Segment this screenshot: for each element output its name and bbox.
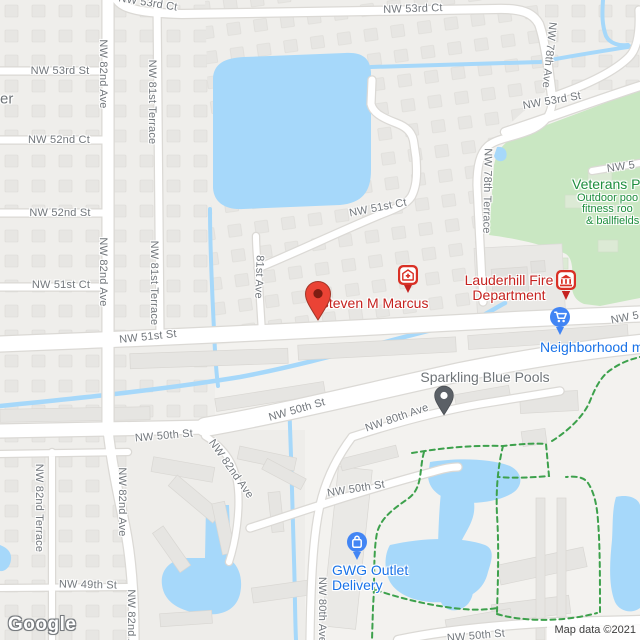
map-canvas[interactable]: Google Map data ©2021 NW 53rd CtNW 53rd … bbox=[0, 0, 640, 640]
street-label: NW 82nd Ave bbox=[97, 39, 109, 108]
gwg-outlet-pin[interactable] bbox=[346, 531, 368, 561]
street-label: NW 82nd Ave bbox=[116, 467, 128, 536]
red-map-pin-icon bbox=[304, 280, 332, 322]
poi-label-neighborhood-market[interactable]: Neighborhood m bbox=[540, 339, 640, 355]
street-label: NW 80th Ave bbox=[316, 577, 328, 640]
street-label: NW 82nd Ave bbox=[125, 589, 137, 640]
poi-label-gwg-outlet[interactable]: GWG Outlet bbox=[332, 562, 408, 578]
civic-building-icon bbox=[555, 269, 577, 301]
street-label: NW 53rd Ct bbox=[383, 2, 443, 16]
poi-label-edge-fragment[interactable]: er bbox=[0, 91, 13, 108]
medical-poi-pin[interactable] bbox=[397, 264, 419, 294]
poi-label-steven-m-marcus[interactable]: Steven M Marcus bbox=[320, 295, 429, 311]
street-label: NW 52nd St bbox=[29, 207, 90, 219]
pond-se-right bbox=[610, 496, 640, 611]
street-label: NW 51st Ct bbox=[32, 279, 90, 291]
street-label: NW 49th St bbox=[59, 578, 117, 591]
shopping-cart-icon bbox=[549, 306, 571, 336]
street-label: NW 52nd Ct bbox=[28, 134, 90, 146]
street-label: NW 81st Terrace bbox=[148, 241, 160, 326]
shopping-bag-icon bbox=[346, 531, 368, 561]
sparkling-blue-pools-pin[interactable] bbox=[434, 385, 455, 416]
street-label: NW 82nd Ave bbox=[97, 237, 109, 306]
poi-label-lauderhill-fire-1[interactable]: Lauderhill Fire bbox=[465, 272, 554, 288]
street-label: NW 82nd Terrace bbox=[33, 464, 45, 552]
fire-department-pin[interactable] bbox=[555, 269, 577, 301]
street-label: NW 53rd St bbox=[31, 65, 90, 77]
street-label: NW 78th Terrace bbox=[480, 148, 493, 234]
google-logo[interactable]: Google bbox=[8, 614, 76, 636]
gray-map-pin-icon bbox=[434, 385, 455, 416]
street-label: NW 81st Terrace bbox=[146, 60, 158, 145]
poi-label-veterans-sub-3[interactable]: & ballfields bbox=[586, 215, 639, 227]
poi-label-lauderhill-fire-2[interactable]: Department bbox=[472, 287, 545, 303]
poi-label-veterans-sub-2[interactable]: fitness roo bbox=[582, 203, 633, 215]
medical-poi-icon bbox=[397, 264, 419, 294]
pond-large bbox=[213, 53, 371, 209]
map-attribution: Map data ©2021 bbox=[547, 621, 640, 640]
neighborhood-market-pin[interactable] bbox=[549, 306, 571, 336]
poi-label-veterans-park[interactable]: Veterans P bbox=[572, 176, 640, 192]
steven-m-marcus-pin[interactable] bbox=[304, 280, 332, 322]
poi-label-gwg-delivery[interactable]: Delivery bbox=[332, 577, 383, 593]
street-label: 81st Ave bbox=[252, 255, 266, 299]
poi-label-sparkling-blue-pools[interactable]: Sparkling Blue Pools bbox=[420, 369, 549, 385]
